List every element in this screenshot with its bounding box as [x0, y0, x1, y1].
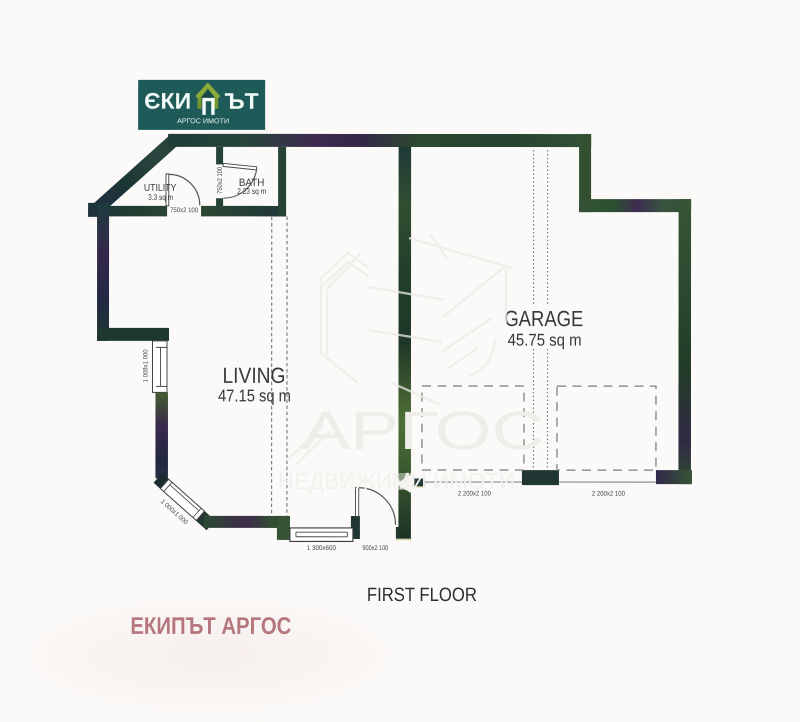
- svg-text:АРГОС: АРГОС: [301, 401, 544, 461]
- svg-text:АРГОС ИМОТИ: АРГОС ИМОТИ: [177, 118, 229, 125]
- svg-text:2.23 sq m: 2.23 sq m: [237, 187, 266, 196]
- svg-text:FIRST FLOOR: FIRST FLOOR: [367, 585, 477, 606]
- svg-text:45.75 sq m: 45.75 sq m: [508, 331, 582, 350]
- svg-text:1 008x1 000: 1 008x1 000: [142, 349, 149, 382]
- svg-text:ЄКИ: ЄКИ: [144, 89, 191, 114]
- svg-text:750x2 100: 750x2 100: [170, 207, 198, 214]
- svg-text:900x2 100: 900x2 100: [362, 545, 388, 552]
- svg-text:47.15 sq m: 47.15 sq m: [218, 386, 291, 405]
- svg-text:LIVING: LIVING: [222, 363, 285, 388]
- svg-text:НЕДВИЖИМИ ИМОТИ: НЕДВИЖИМИ ИМОТИ: [278, 468, 515, 494]
- svg-text:ЪТ: ЪТ: [225, 89, 259, 114]
- svg-text:2 200x2 100: 2 200x2 100: [592, 491, 625, 498]
- svg-text:GARAGE: GARAGE: [504, 306, 583, 331]
- svg-text:3.3 sq m: 3.3 sq m: [148, 193, 173, 202]
- svg-text:750x2 100: 750x2 100: [217, 167, 224, 194]
- svg-text:1 300x600: 1 300x600: [307, 545, 336, 552]
- svg-text:ЕКИПЪТ АРГОС: ЕКИПЪТ АРГОС: [130, 613, 291, 640]
